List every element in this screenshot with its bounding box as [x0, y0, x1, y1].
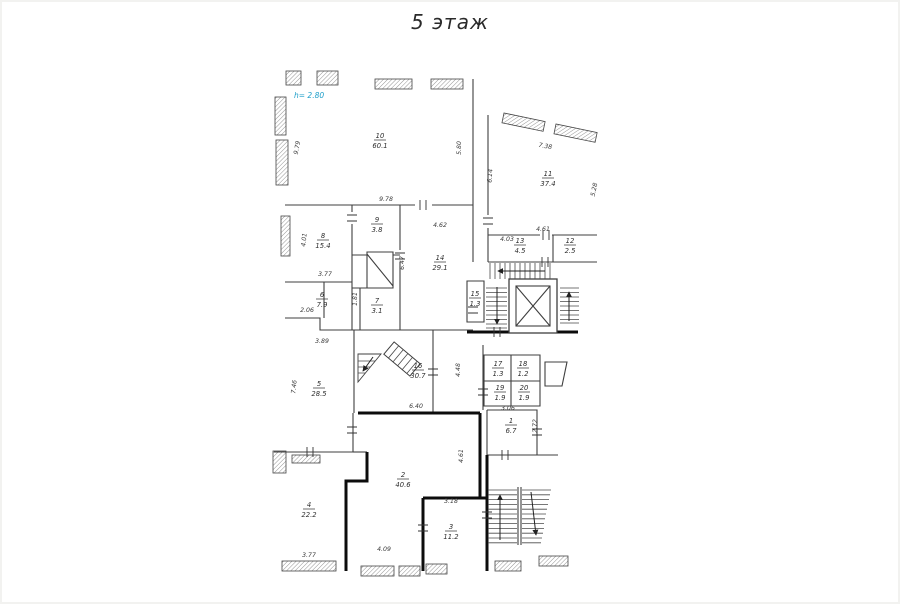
room-label-1: 16.7: [505, 417, 517, 435]
room-labels: 1060.11137.4815.493.81429.1134.5122.567.…: [301, 132, 576, 541]
dimension-text: 6.47: [399, 256, 406, 270]
window-icon: [502, 113, 545, 131]
dimension-text: 3.18: [444, 498, 458, 505]
svg-text:5: 5: [317, 380, 321, 388]
dimension-text: 5.80: [456, 141, 463, 155]
dimension-text: 4.09: [377, 546, 391, 553]
room-label-7: 73.1: [371, 297, 383, 315]
svg-text:29.1: 29.1: [432, 264, 447, 272]
svg-text:4: 4: [307, 501, 311, 509]
svg-text:22.2: 22.2: [301, 511, 316, 519]
svg-text:1.3: 1.3: [493, 370, 504, 378]
door-ticks: [307, 200, 549, 531]
window-icon: [317, 71, 338, 85]
svg-text:1.3: 1.3: [470, 300, 481, 308]
dimension-text: 9.78: [379, 196, 393, 203]
svg-text:40.6: 40.6: [395, 481, 411, 489]
window-icon: [361, 566, 394, 576]
dimension-text: 3.89: [315, 338, 329, 345]
window-icon: [276, 140, 288, 185]
dimension-text: 4.61: [458, 449, 465, 463]
svg-text:15.4: 15.4: [315, 242, 330, 250]
stair-treads: [488, 490, 551, 543]
dimension-text: 4.03: [500, 236, 514, 243]
dimension-text: 6.14: [487, 169, 495, 183]
dimension-text: 4.61: [536, 226, 550, 233]
svg-text:37.4: 37.4: [540, 180, 555, 188]
room-label-13: 134.5: [514, 237, 526, 255]
svg-text:16: 16: [414, 362, 423, 370]
svg-text:30.7: 30.7: [410, 372, 426, 380]
window-icon: [399, 566, 420, 576]
dimension-text: 7.46: [290, 380, 298, 394]
svg-text:3: 3: [449, 523, 453, 531]
room-label-17: 171.3: [492, 360, 504, 378]
window-icon: [273, 451, 286, 473]
svg-text:12: 12: [566, 237, 575, 245]
svg-text:1.9: 1.9: [495, 394, 506, 402]
room-label-11: 1137.4: [540, 170, 555, 188]
room-label-2: 240.6: [395, 471, 411, 489]
svg-text:3.1: 3.1: [372, 307, 383, 315]
room-label-6: 67.9: [316, 291, 328, 309]
svg-text:8: 8: [321, 232, 326, 240]
dimension-labels: 9.795.809.787.385.286.144.034.614.626.47…: [290, 140, 599, 559]
svg-text:1: 1: [509, 417, 513, 425]
svg-text:11.2: 11.2: [443, 533, 458, 541]
dimension-text: 5.28: [590, 182, 600, 197]
outer-walls: [272, 71, 619, 571]
svg-text:17: 17: [494, 360, 503, 368]
svg-text:11: 11: [544, 170, 553, 178]
room-label-10: 1060.1: [372, 132, 387, 150]
room-label-19: 191.9: [494, 384, 506, 402]
dimension-text: 2.06: [300, 307, 314, 314]
dimension-text: 4.62: [433, 222, 447, 229]
svg-text:7.9: 7.9: [317, 301, 328, 309]
dimension-text: 4.01: [300, 233, 308, 247]
svg-text:10: 10: [376, 132, 385, 140]
window-icon: [281, 216, 290, 256]
floor-plan-page: 5 этаж: [0, 0, 900, 604]
dimension-text: 2.72: [532, 419, 539, 433]
room-label-14: 1429.1: [432, 254, 447, 272]
svg-text:19: 19: [496, 384, 505, 392]
room-label-9: 93.8: [371, 216, 383, 234]
ceiling-height-note: h= 2.80: [294, 91, 324, 100]
svg-text:13: 13: [516, 237, 525, 245]
elevator-shaft: [509, 279, 557, 333]
room-label-8: 815.4: [315, 232, 330, 250]
spiral-stair: [384, 342, 420, 376]
svg-text:14: 14: [436, 254, 445, 262]
dimension-text: 3.06: [501, 405, 515, 412]
window-icon: [282, 561, 336, 571]
svg-text:4.5: 4.5: [515, 247, 526, 255]
lower-stairwell: [488, 490, 551, 543]
svg-text:7: 7: [375, 297, 380, 305]
svg-text:15: 15: [471, 290, 480, 298]
room-label-20: 201.9: [518, 384, 530, 402]
svg-text:20: 20: [520, 384, 529, 392]
window-icon: [275, 97, 286, 135]
corner-stair: [358, 354, 381, 382]
svg-text:2: 2: [401, 471, 405, 479]
floor-plan-drawing: h= 2.80 1060.11137.4815.493.81429.1134.5…: [0, 0, 900, 604]
svg-text:2.5: 2.5: [565, 247, 576, 255]
svg-text:6.7: 6.7: [506, 427, 517, 435]
svg-text:1.2: 1.2: [518, 370, 529, 378]
dimension-text: 7.38: [538, 142, 553, 151]
window-icon: [426, 564, 447, 574]
dimension-text: 4.48: [455, 363, 462, 377]
room-label-18: 181.2: [517, 360, 529, 378]
window-icon: [554, 124, 597, 142]
dimension-text: 3.77: [318, 271, 332, 278]
svg-text:18: 18: [519, 360, 528, 368]
svg-text:6: 6: [320, 291, 325, 299]
room-label-4: 422.2: [301, 501, 316, 519]
window-icon: [292, 455, 320, 463]
room-label-5: 528.5: [311, 380, 326, 398]
svg-text:28.5: 28.5: [311, 390, 326, 398]
dimension-text: 6.40: [409, 403, 423, 410]
window-icon: [286, 71, 301, 85]
svg-text:60.1: 60.1: [372, 142, 387, 150]
svg-text:9: 9: [375, 216, 379, 224]
svg-text:3.8: 3.8: [372, 226, 383, 234]
svg-text:1.9: 1.9: [519, 394, 530, 402]
window-icon: [431, 79, 463, 89]
window-icon: [495, 561, 521, 571]
room-label-12: 122.5: [564, 237, 576, 255]
window-icon: [539, 556, 568, 566]
dimension-text: 1.81: [352, 292, 359, 306]
room-label-15: 151.3: [469, 290, 481, 308]
dimension-text: 9.79: [293, 140, 302, 155]
dimension-text: 3.77: [302, 552, 316, 559]
room-label-3: 311.2: [443, 523, 458, 541]
window-icon: [375, 79, 412, 89]
